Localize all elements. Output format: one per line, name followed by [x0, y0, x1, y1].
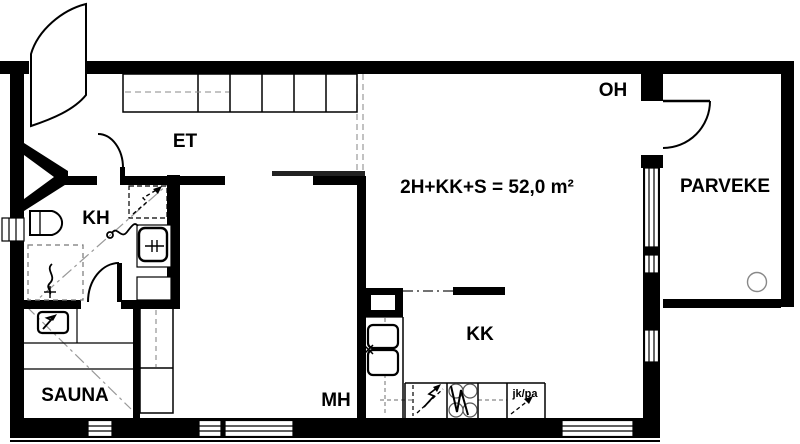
balcony-wall-bottom [663, 299, 781, 308]
kh-lower-door-arc [88, 263, 119, 302]
room-label-sauna: SAUNA [41, 385, 109, 406]
entry-door-swing [31, 4, 86, 126]
wall-et-kh-left [65, 176, 97, 185]
washbasin [139, 228, 167, 261]
room-label-kh: KH [82, 208, 109, 229]
window-right-2 [645, 255, 659, 273]
room-label-oh: OH [599, 80, 628, 101]
room-label-parveke: PARVEKE [680, 176, 770, 197]
window-mh-2 [225, 421, 293, 437]
window-mh-1 [199, 421, 221, 437]
sauna-vent [88, 421, 112, 437]
kitchen [364, 317, 545, 418]
wall-kh-chamfer [24, 143, 68, 211]
window-kk [562, 421, 633, 437]
reservation-arrow [133, 189, 158, 214]
wall-sauna-closet [133, 300, 140, 420]
doors [31, 4, 710, 302]
laundry-space [137, 277, 171, 300]
mh-closet [140, 308, 173, 413]
kh-door-arc [98, 134, 123, 168]
toilet [30, 211, 62, 235]
wall-kk-oh-stub [453, 287, 505, 295]
cooktop [449, 384, 477, 417]
label-fridge-freezer: jk/pa [511, 388, 538, 400]
apartment-title: 2H+KK+S = 52,0 m² [400, 177, 574, 198]
window-right-3 [645, 330, 659, 362]
wall-grille [2, 218, 24, 241]
room-label-kk: KK [466, 324, 494, 345]
stove-reservation [417, 384, 443, 413]
floor-plan-canvas: ET KH SAUNA MH KK OH PARVEKE 2H+KK+S = 5… [0, 0, 800, 444]
sauna-fixtures [24, 308, 133, 369]
wall-left [10, 61, 24, 438]
wall-top [86, 61, 794, 74]
room-label-et: ET [173, 131, 198, 152]
balcony-door [663, 101, 710, 148]
duct-shaft-inner [371, 295, 395, 310]
guide-lines [26, 71, 507, 416]
walls [0, 61, 794, 438]
kh-door-leaf [120, 167, 125, 185]
balcony-wall-right [781, 61, 794, 307]
floor-plan-page: ET KH SAUNA MH KK OH PARVEKE 2H+KK+S = 5… [0, 0, 800, 444]
wall-kh-sauna-left [22, 300, 81, 309]
kh-lower-door-leaf [117, 263, 122, 302]
et-wardrobe [123, 74, 357, 112]
balcony-door-jamb-bottom [641, 155, 663, 168]
balcony-drain [748, 273, 767, 292]
room-label-mh: MH [321, 390, 351, 411]
bathroom-fixtures [28, 186, 171, 300]
balcony-door-jamb-top [641, 74, 663, 101]
balcony-door-arc [663, 101, 710, 148]
washer-connection-symbol [107, 224, 138, 238]
sliding-door-panel [272, 171, 365, 176]
window-right-1 [645, 168, 659, 247]
wall-et-kh-right [121, 176, 167, 185]
